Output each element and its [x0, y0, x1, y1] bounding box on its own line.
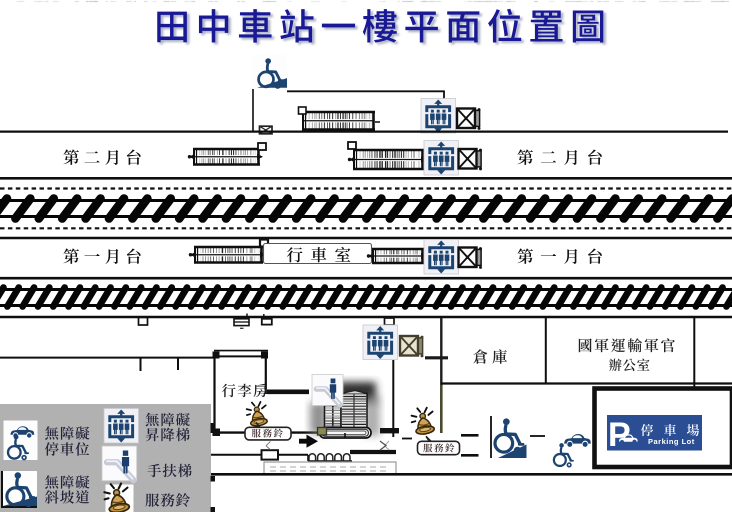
svg-text:Parking Lot: Parking Lot: [648, 437, 695, 446]
